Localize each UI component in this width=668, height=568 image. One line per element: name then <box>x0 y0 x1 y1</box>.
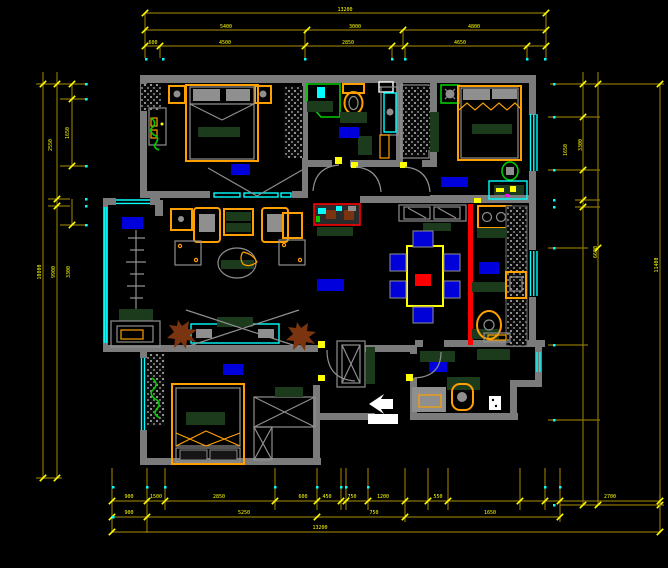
room-label-bathroom <box>339 127 359 138</box>
sliding-door-track <box>214 193 240 197</box>
sliding-door-track <box>281 193 291 197</box>
dim-text: 2850 <box>342 40 354 46</box>
drying-rack <box>126 230 146 312</box>
wardrobe-hatch <box>284 86 303 158</box>
sliding-door-track-red <box>468 204 473 345</box>
dim-text: 750 <box>369 510 378 516</box>
door-swing-arc <box>405 167 430 192</box>
window-bedroom2 <box>531 114 538 171</box>
sliding-door-leaves <box>208 168 302 196</box>
switch-plate <box>489 396 501 410</box>
dimension-chain-left: 2550 1650 10800 9900 3300 <box>36 72 88 481</box>
dim-text: 900 <box>124 494 133 500</box>
plant-icon <box>441 85 459 103</box>
room-label-bedroom-1 <box>231 164 250 175</box>
shelf <box>275 387 303 397</box>
dim-text: 1650 <box>484 510 496 516</box>
storage-closet <box>337 341 375 387</box>
dim-text: 5250 <box>238 510 250 516</box>
dim-text: 1650 <box>563 144 569 156</box>
double-bed <box>458 86 522 160</box>
window-balcony-top <box>116 200 150 203</box>
dimension-chain-bottom: 900 1500 2850 600 450 750 1200 550 2700 … <box>109 468 663 535</box>
side-table-right <box>283 213 302 238</box>
dim-text: 1500 <box>150 494 162 500</box>
cad-canvas: 13200 5400 3000 4800 600 4500 2850 4650 … <box>0 0 668 568</box>
room-bedroom-3 <box>147 354 315 464</box>
window-kitchen <box>531 251 538 296</box>
door-hinge <box>406 374 413 381</box>
dimension-chain-right: 1650 3300 6600 11400 <box>548 72 664 508</box>
annotations <box>368 394 398 424</box>
door-hinge <box>474 198 481 203</box>
desk <box>412 377 480 412</box>
door-hinge <box>335 157 342 164</box>
room-bathroom <box>306 84 398 158</box>
side-table <box>171 209 192 230</box>
dining-table <box>407 246 443 306</box>
door-swing-arc <box>356 167 381 192</box>
room-kitchen <box>472 206 527 346</box>
shower-bench <box>307 101 333 112</box>
vanity-sink <box>381 87 398 135</box>
room-label-bedroom-3 <box>223 364 243 375</box>
dim-text: 1200 <box>377 494 389 500</box>
toilet-icon <box>343 84 364 114</box>
shoe-bench <box>477 349 510 360</box>
floor-mat <box>119 309 153 321</box>
dim-text: 4800 <box>468 24 480 30</box>
dim-text: 4650 <box>454 40 466 46</box>
console-cabinet <box>314 204 360 225</box>
room-label-living <box>317 279 344 291</box>
dim-text: 750 <box>347 494 356 500</box>
door-hinge <box>318 375 325 381</box>
dim-text: 900 <box>124 510 133 516</box>
dim-text: 550 <box>433 494 442 500</box>
dim-text: 5400 <box>220 24 232 30</box>
dim-text: 600 <box>148 40 157 46</box>
end-table-right <box>279 240 305 265</box>
room-bedroom-1 <box>141 84 303 196</box>
armchair-left <box>194 208 220 242</box>
dim-text: 600 <box>298 494 307 500</box>
shoe-bench <box>420 351 455 362</box>
dim-text: 9900 <box>51 266 57 278</box>
bath-shelf <box>340 112 367 123</box>
room-dining <box>390 198 481 345</box>
dim-text: 1650 <box>65 127 71 139</box>
room-label-bedroom-2 <box>441 177 468 187</box>
hall-shelf <box>317 227 353 236</box>
annotation-block <box>368 414 398 424</box>
cabinet-door <box>380 135 389 158</box>
floor-plan-drawing: 13200 5400 3000 4800 600 4500 2850 4650 … <box>0 0 668 568</box>
dim-text: 2700 <box>604 494 616 500</box>
room-label-balcony <box>122 217 143 229</box>
dim-text: 2550 <box>48 139 54 151</box>
hallway <box>314 204 466 236</box>
dim-text: 3300 <box>578 139 584 151</box>
coat-rack <box>399 205 466 231</box>
entry-arrow-icon <box>369 394 393 414</box>
dim-text: 2850 <box>213 494 225 500</box>
nightstand-left <box>169 86 185 103</box>
wardrobe <box>254 397 315 460</box>
dim-text: 6600 <box>593 246 599 258</box>
dim-text: 4500 <box>219 40 231 46</box>
room-bedroom-2 <box>441 85 527 199</box>
washing-machine <box>111 321 160 347</box>
window-bedroom3 <box>142 358 145 430</box>
dim-text: 10800 <box>37 264 43 279</box>
dimension-chain-top: 13200 5400 3000 4800 600 4500 2850 4650 <box>142 7 549 58</box>
wall-hatch <box>141 84 161 111</box>
bath-cabinet <box>358 136 372 155</box>
end-table-left <box>175 241 201 265</box>
desk-chair <box>502 162 518 180</box>
dim-text: 13200 <box>312 525 327 531</box>
door-swing-arc <box>313 165 339 191</box>
tv-sight-lines <box>186 310 299 347</box>
door-hinge <box>318 341 325 348</box>
shower-head-icon <box>317 87 325 98</box>
dim-text: 3300 <box>66 266 72 278</box>
double-bed <box>186 85 258 161</box>
dim-text: 11400 <box>654 257 660 272</box>
counter <box>506 206 527 346</box>
room-label-kitchen <box>479 262 499 274</box>
dim-text: 3000 <box>349 24 361 30</box>
sofa <box>224 209 253 235</box>
coffee-table <box>218 248 257 278</box>
double-bed <box>172 384 244 464</box>
dim-text: 450 <box>322 494 331 500</box>
dim-text: 13200 <box>337 7 352 13</box>
room-balcony <box>111 217 160 347</box>
